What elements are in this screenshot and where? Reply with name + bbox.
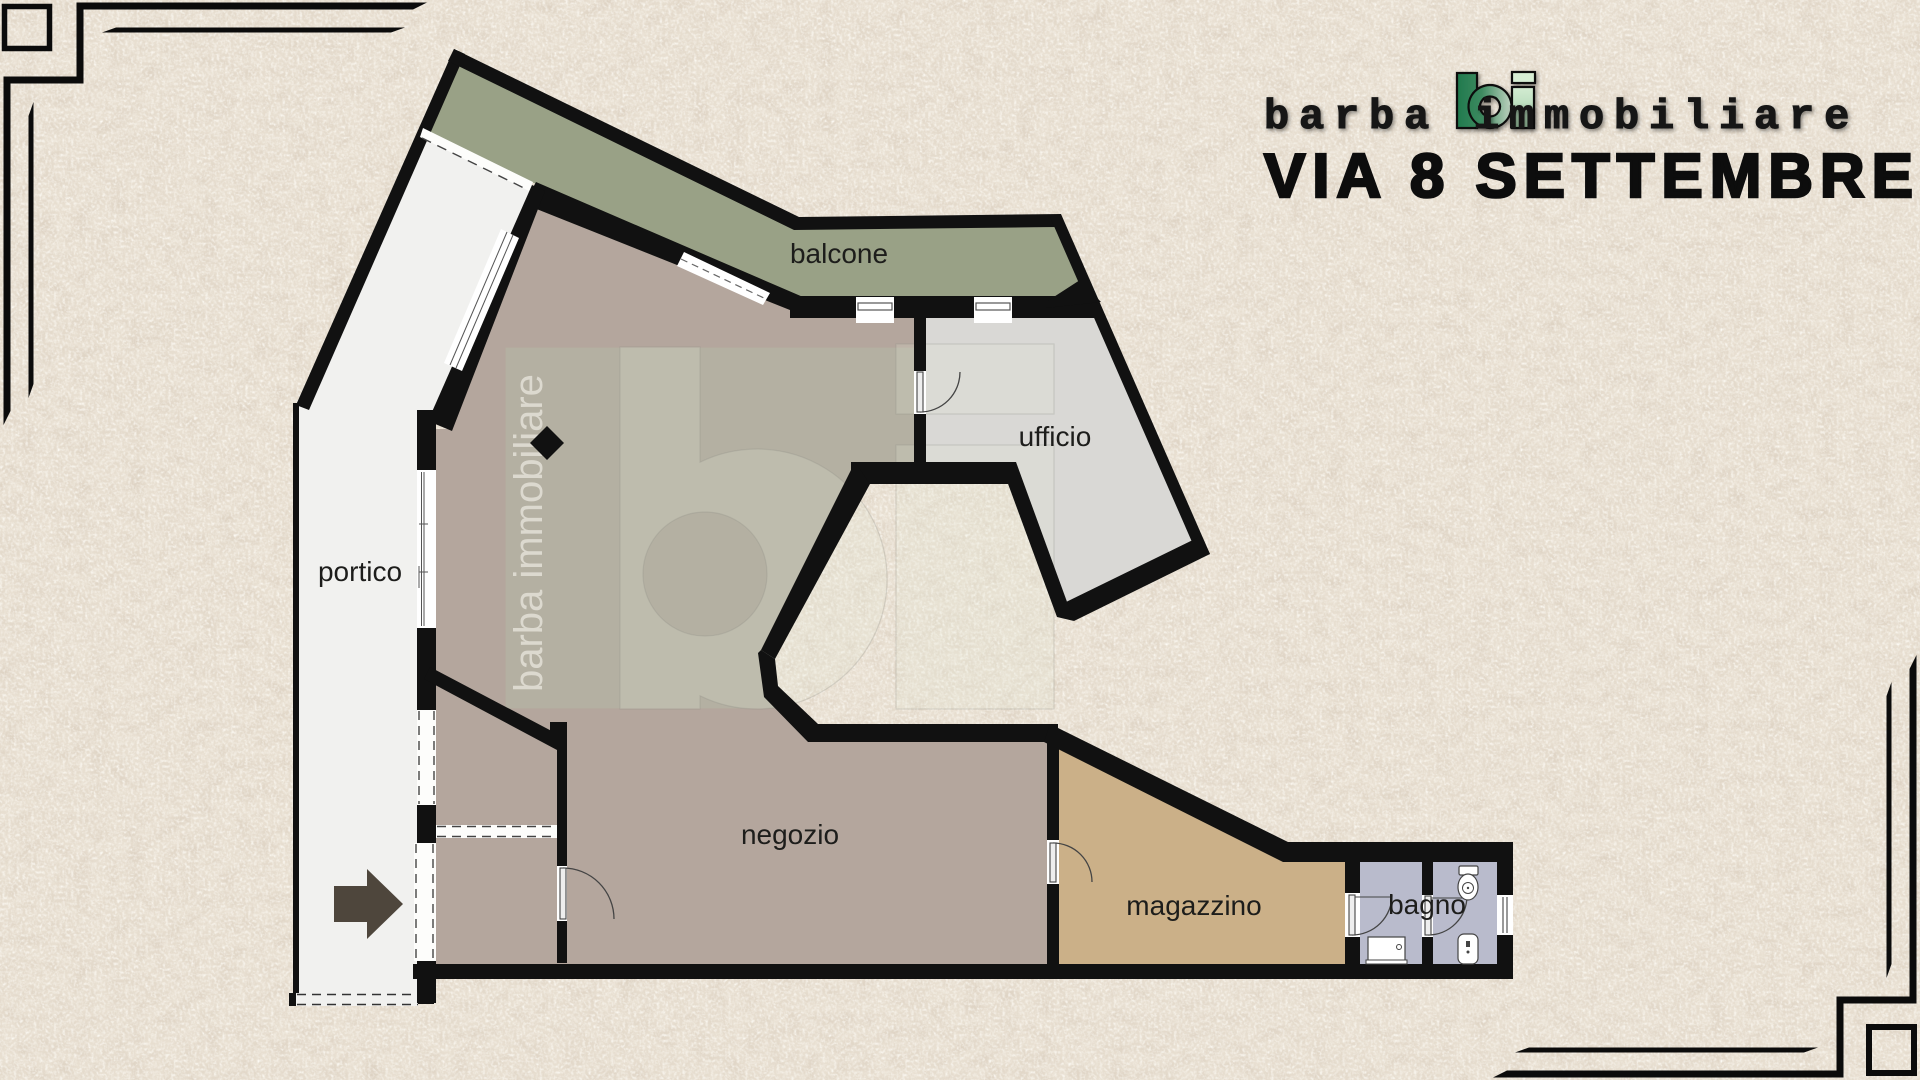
svg-text:magazzino: magazzino <box>1126 890 1261 921</box>
svg-text:bagno: bagno <box>1388 889 1466 920</box>
svg-text:balcone: balcone <box>790 238 888 269</box>
svg-text:barba immobiliare: barba immobiliare <box>1264 93 1859 141</box>
svg-text:VIA 8 SETTEMBRE: VIA 8 SETTEMBRE <box>1264 142 1920 211</box>
svg-text:negozio: negozio <box>741 819 839 850</box>
svg-text:ufficio: ufficio <box>1019 421 1092 452</box>
svg-text:barba immobiliare: barba immobiliare <box>507 374 551 692</box>
svg-text:portico: portico <box>318 556 402 587</box>
